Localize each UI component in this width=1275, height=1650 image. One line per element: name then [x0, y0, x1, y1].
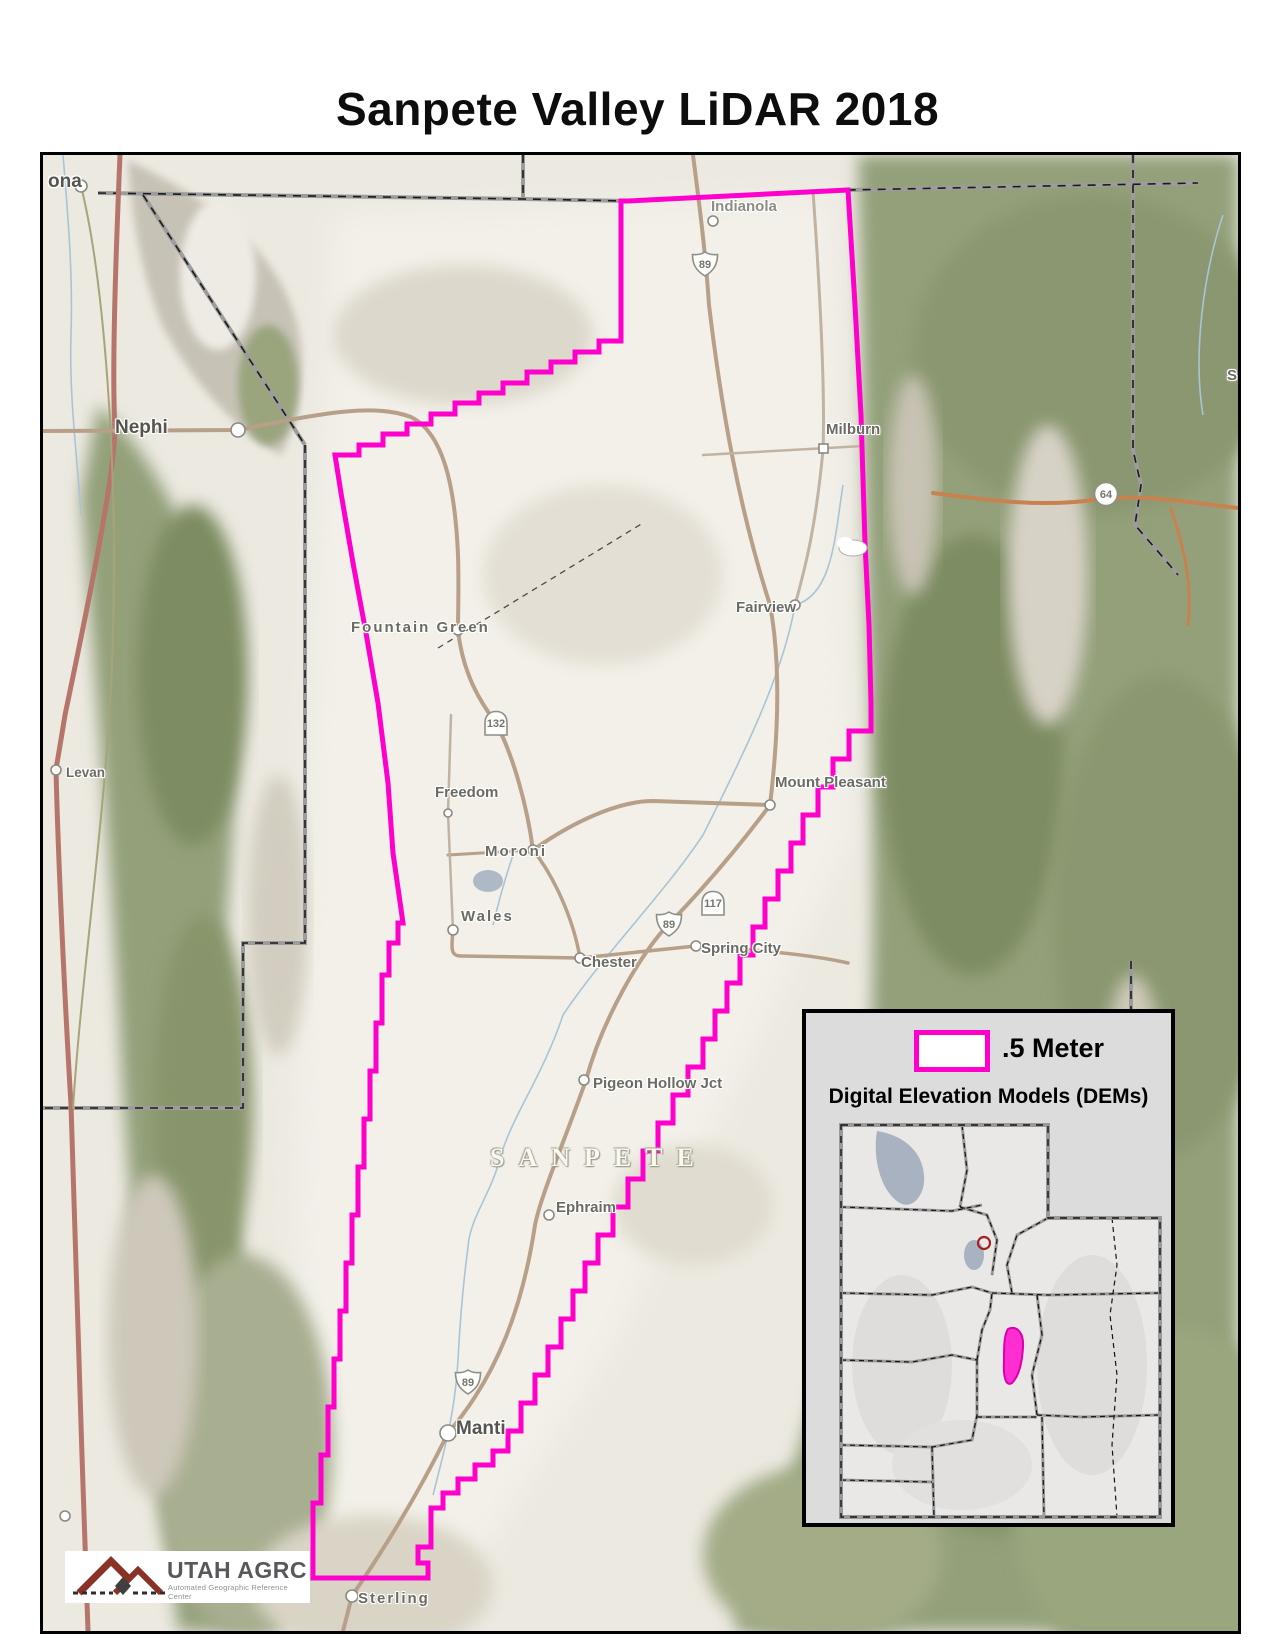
legend-box: .5 Meter Digital Elevation Models (DEMs) [802, 1009, 1175, 1527]
town-label-manti: Manti [456, 1418, 506, 1440]
route-64-shield: 64 [1091, 480, 1121, 508]
town-label-mona: ona [48, 171, 82, 193]
agrc-logo-box: UTAH AGRC Automated Geographic Reference… [65, 1551, 310, 1603]
legend-swatch-label: .5 Meter [1002, 1033, 1104, 1064]
town-label-chester: Chester [581, 954, 637, 971]
town-label-freedom: Freedom [435, 784, 498, 801]
town-label-fairview: Fairview [736, 599, 796, 616]
town-label-indianola: Indianola [711, 198, 777, 215]
sr-117-shield: 117 [698, 889, 728, 917]
legend-subtitle: Digital Elevation Models (DEMs) [806, 1085, 1171, 1109]
town-label-edge-cutoff: S [1227, 367, 1237, 384]
town-label-spring-city: Spring City [701, 940, 781, 957]
sr-132-shield: 132 [481, 709, 511, 737]
town-label-nephi: Nephi [115, 417, 168, 439]
agrc-logo-subtitle: Automated Geographic Reference Center [168, 1583, 310, 1601]
town-label-levan: Levan [66, 765, 105, 780]
legend-boundary-swatch [914, 1030, 990, 1072]
us-89-shield-north: 89 [690, 250, 720, 278]
town-label-sterling: Sterling [358, 1590, 430, 1607]
agrc-logo-title: UTAH AGRC [167, 1557, 307, 1584]
town-label-ephraim: Ephraim [556, 1199, 616, 1216]
agrc-mountain-icon [71, 1553, 167, 1599]
town-label-fountain-green: Fountain Green [351, 619, 490, 636]
us-89-shield-central: 89 [654, 910, 684, 938]
town-label-pigeon-hollow-jct: Pigeon Hollow Jct [593, 1075, 722, 1092]
map-frame: ona Nephi Levan Indianola Fountain Green… [40, 152, 1241, 1634]
town-label-moroni: Moroni [485, 843, 547, 860]
us-89-shield-south: 89 [453, 1368, 483, 1396]
utah-lake [964, 1240, 984, 1270]
town-label-wales: Wales [461, 908, 514, 925]
town-label-mount-pleasant: Mount Pleasant [775, 774, 886, 791]
page-title: Sanpete Valley LiDAR 2018 [0, 82, 1275, 136]
page-root: Sanpete Valley LiDAR 2018 [0, 0, 1275, 1650]
moroni-reservoir [473, 870, 503, 892]
county-label-sanpete: SANPETE [490, 1143, 708, 1173]
utah-inset-map [812, 1115, 1168, 1520]
town-label-milburn: Milburn [826, 421, 880, 438]
